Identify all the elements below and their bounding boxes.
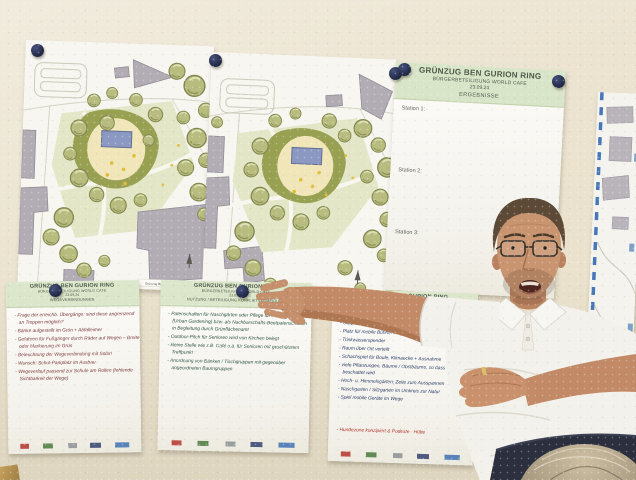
flipchart-1-notes: - Frage der erreichb. Übergänge: sind di… (14, 310, 141, 384)
site-plan-a: Grünzug Ben-Gurion-Ring (17, 40, 213, 291)
flipchart-1: GRÜNZUG BEN GURION RING BÜRGERBETEILIGUN… (6, 280, 141, 454)
results-sheet-header: GRÜNZUG BEN GURION RING BÜRGERBETEILIGUN… (394, 62, 566, 108)
wood-corner (0, 464, 20, 480)
flipchart-1-topic: WEGEVERBINDUNGEN (6, 297, 139, 304)
push-pin (49, 284, 62, 297)
note-line: - Gefahren für Fußgänger durch Räder auf… (15, 334, 141, 350)
note-line: - Beleuchtung der Wegeverbindung mit Sol… (15, 350, 141, 359)
station-label: Station 1: (399, 104, 569, 175)
presenter-pointing-hand (256, 279, 309, 327)
push-pin (398, 63, 411, 76)
presenter-left-arm (256, 279, 500, 354)
push-pin (552, 75, 565, 88)
flipchart-1-header: GRÜNZUG BEN GURION RING BÜRGERBETEILIGUN… (6, 280, 139, 308)
polo-button (526, 324, 530, 328)
presenter (250, 190, 636, 480)
push-pin (209, 54, 222, 67)
note-line: - Frage der erreichb. Übergänge: sind di… (14, 310, 140, 326)
push-pin (31, 44, 44, 57)
note-line: - Wegeverlauf passend zur Schule am Roll… (15, 367, 141, 383)
site-plan-a-drawing: Grünzug Ben-Gurion-Ring (17, 40, 213, 291)
photo-scene: Grünzug Ben-Gurion-Ring (0, 0, 636, 480)
presenter-head (492, 198, 566, 300)
note-line: - Bänke aufgestellt im Grün + Abfalleime… (15, 326, 141, 335)
polo-sleeve (420, 296, 500, 354)
polo-button (526, 337, 530, 341)
note-line: - Wunsch: Schul-Parkplatz im Ausbau (15, 358, 141, 367)
footer-logos (20, 442, 129, 449)
push-pin (236, 285, 249, 298)
